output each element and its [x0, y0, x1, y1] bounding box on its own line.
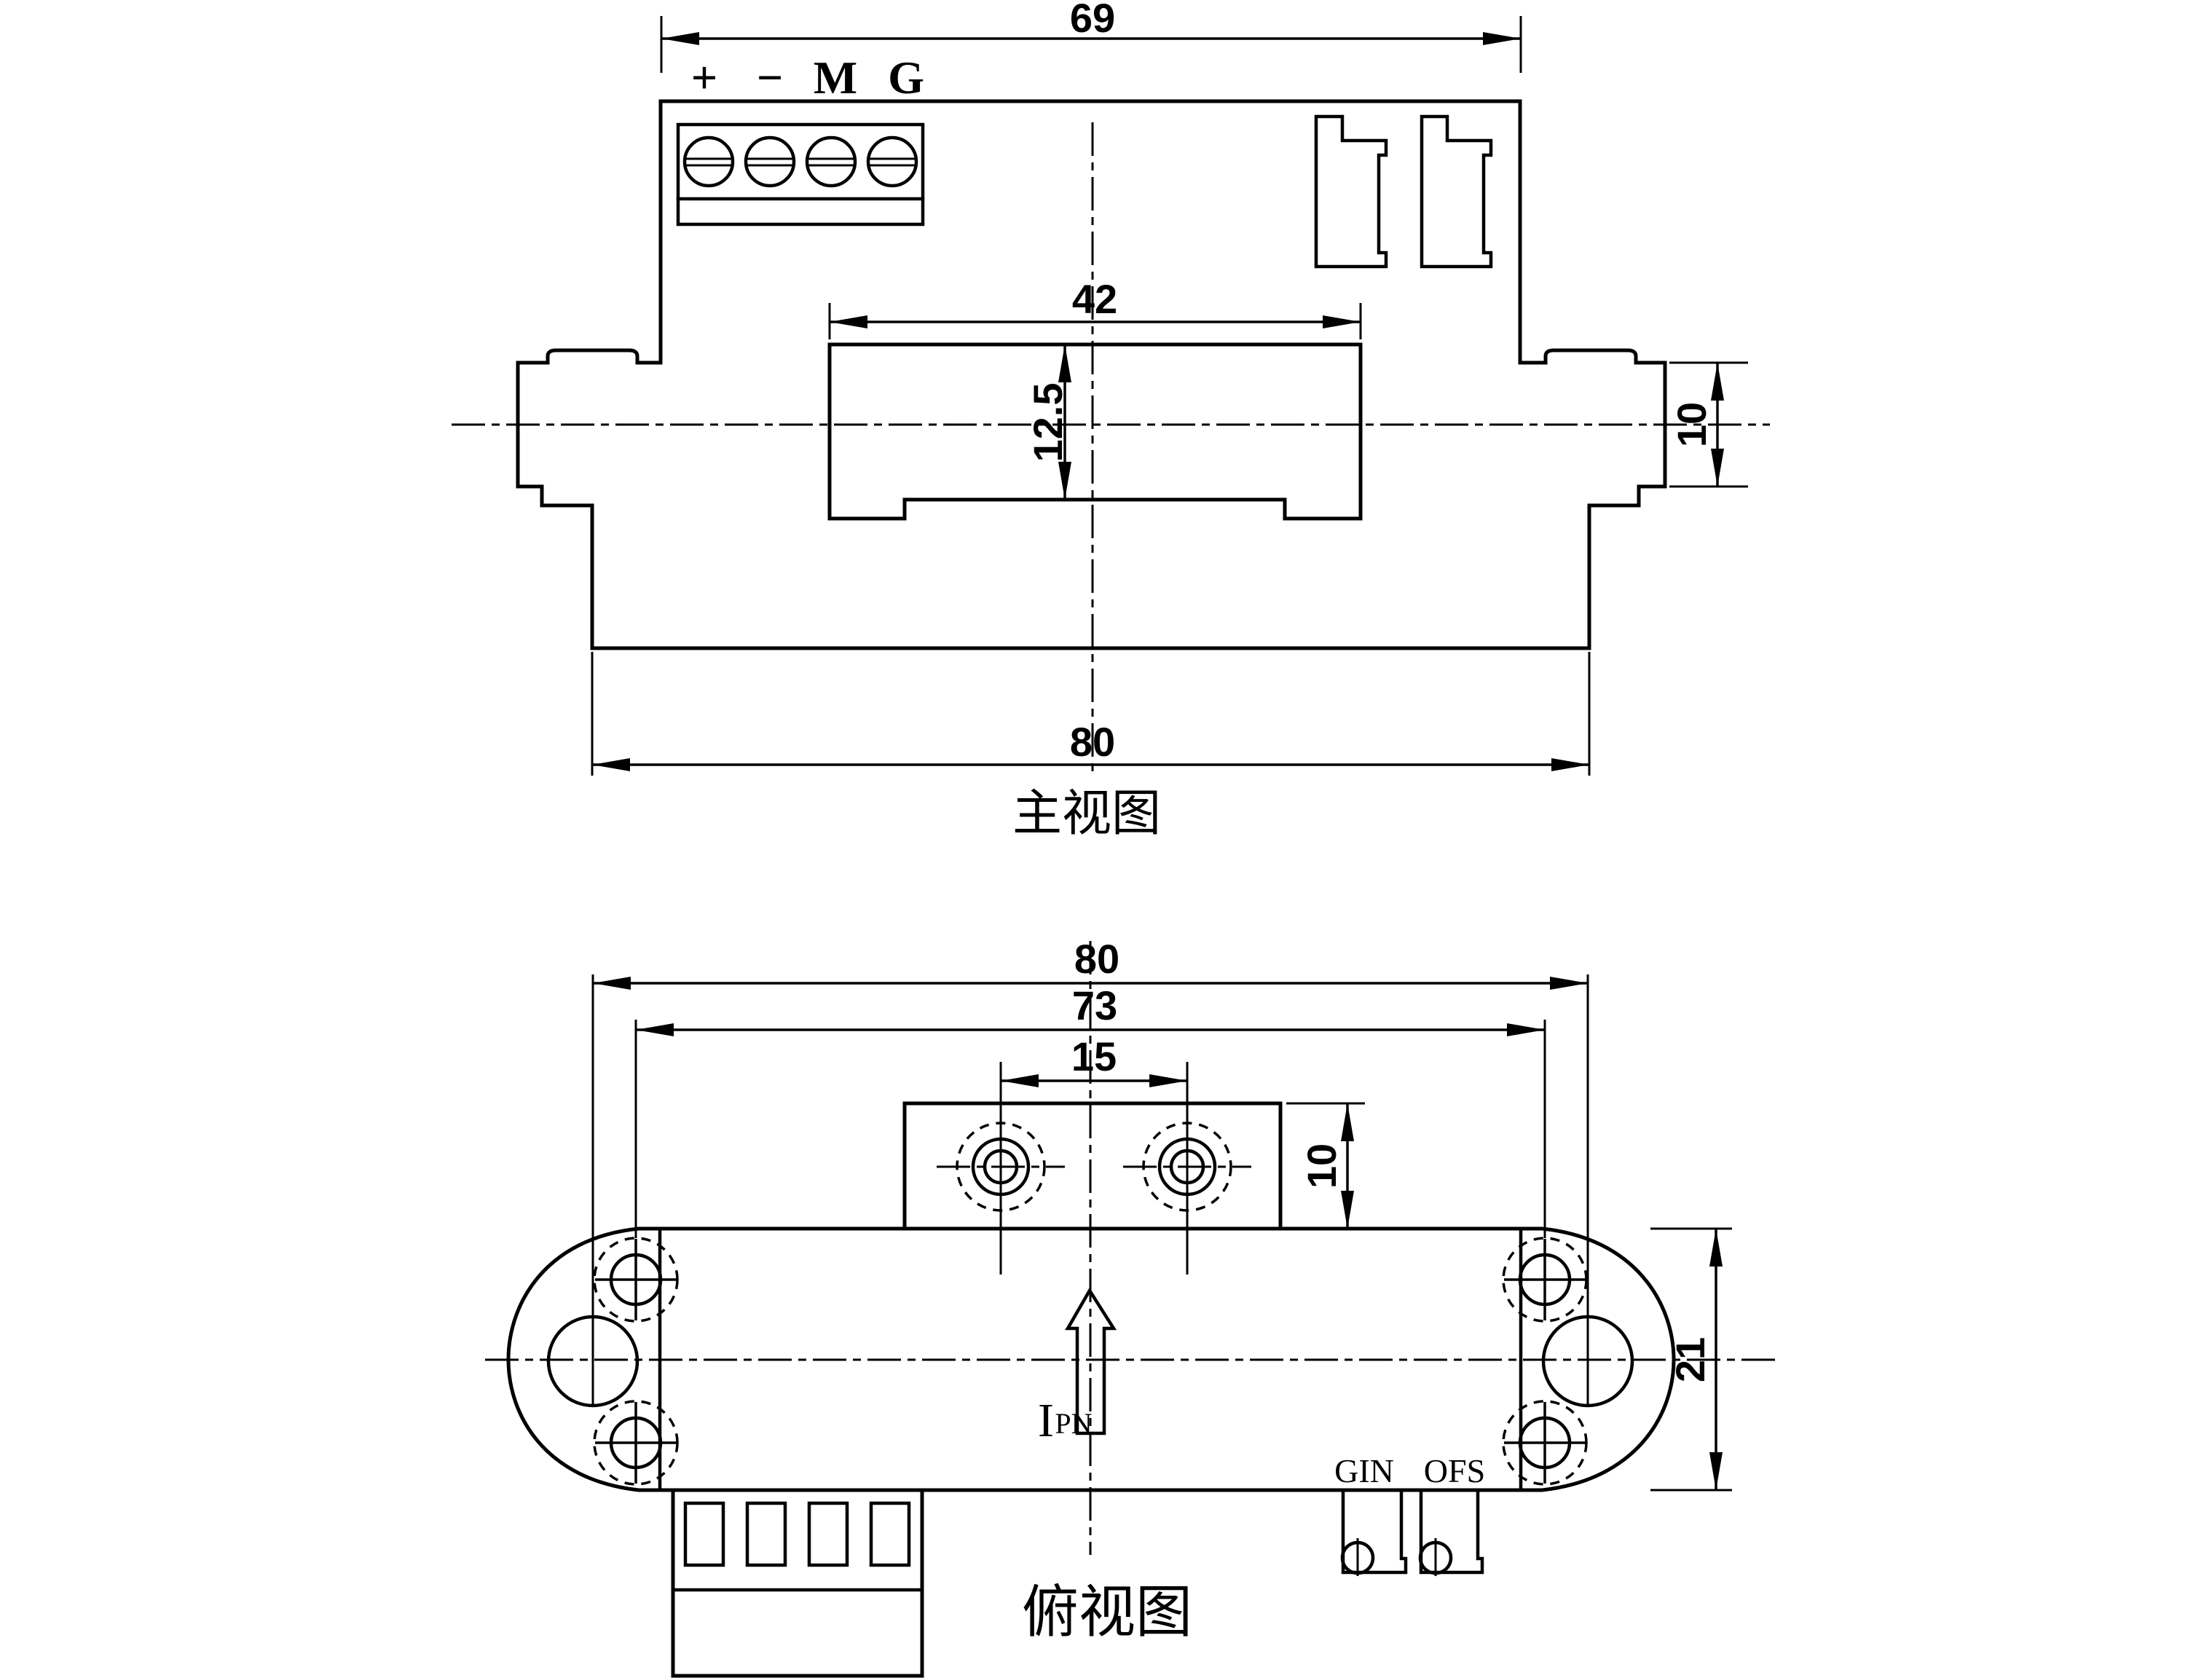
dim-21-label: 21	[1667, 1337, 1713, 1382]
front-connector-1	[1316, 117, 1386, 267]
screw-slot	[869, 159, 916, 165]
front-terminal-block	[678, 125, 923, 224]
ofs-trimmer	[1420, 1490, 1482, 1576]
dim-15-label: 15	[1071, 1033, 1117, 1079]
dim-73-label: 73	[1072, 982, 1117, 1028]
dim-80-front: 80	[592, 652, 1589, 776]
terminal-screw-1	[685, 138, 733, 186]
screw-circle	[868, 138, 916, 186]
front-view: + − M G 69 42 12.5 10	[452, 0, 1770, 841]
dim-12-5-label: 12.5	[1025, 383, 1071, 462]
screw-slot	[808, 159, 854, 165]
top-terminal-block-body	[673, 1490, 922, 1676]
right-cap-hole-top	[1503, 1238, 1586, 1321]
terminal-label-minus: −	[757, 52, 783, 103]
gin-label: GIN	[1334, 1452, 1394, 1489]
dim-10-top-label: 10	[1299, 1143, 1345, 1189]
dim-10-top: 10	[1286, 1103, 1365, 1229]
terminal-screw-3	[807, 138, 855, 186]
screw-circle	[685, 138, 733, 186]
dim-80-front-label: 80	[1070, 719, 1115, 765]
screw-circle	[807, 138, 855, 186]
dim-15: 15	[1001, 1033, 1187, 1275]
screw-slot	[747, 159, 793, 165]
ipn-label-sub: PN	[1055, 1407, 1092, 1440]
terminal-screw-2	[746, 138, 794, 186]
top-view: 80 73 15 10 21	[485, 936, 1782, 1676]
terminal-label-g: G	[888, 52, 924, 103]
front-connector-2	[1422, 117, 1491, 267]
dim-69-label: 69	[1070, 0, 1115, 41]
ipn-label-main: I	[1038, 1394, 1054, 1447]
dim-10-front-label: 10	[1669, 402, 1715, 447]
terminal-slot-2	[747, 1503, 785, 1565]
right-cap-hole-bottom	[1503, 1401, 1586, 1484]
dim-12-5: 12.5	[1025, 344, 1071, 500]
crosshair	[1504, 1239, 1586, 1320]
engineering-drawing: + − M G 69 42 12.5 10	[0, 0, 2212, 1678]
dim-69: 69	[661, 0, 1521, 73]
screw-slot	[685, 159, 732, 165]
terminal-slot-4	[871, 1503, 909, 1565]
dim-42-label: 42	[1072, 276, 1117, 322]
left-cap-hole-bottom	[594, 1401, 677, 1484]
front-view-title: 主视图	[1012, 786, 1161, 841]
dim-80-top-label: 80	[1074, 936, 1119, 982]
gin-trimmer	[1342, 1490, 1406, 1576]
terminal-label-plus: +	[691, 52, 717, 103]
dim-42: 42	[830, 276, 1361, 339]
front-aperture-window	[830, 344, 1361, 519]
crosshair	[1504, 1402, 1586, 1484]
terminal-slot-1	[685, 1503, 723, 1565]
terminal-label-m: M	[814, 52, 857, 103]
terminal-screw-4	[868, 138, 916, 186]
top-terminal-block	[673, 1490, 922, 1676]
crosshair	[595, 1239, 677, 1320]
left-cap-hole-top	[594, 1238, 677, 1321]
screw-circle	[746, 138, 794, 186]
ofs-label: OFS	[1424, 1452, 1485, 1489]
top-view-title: 俯视图	[1022, 1580, 1192, 1644]
crosshair	[595, 1402, 677, 1484]
terminal-slot-3	[809, 1503, 847, 1565]
drawing-canvas: + − M G 69 42 12.5 10	[0, 0, 2212, 1678]
